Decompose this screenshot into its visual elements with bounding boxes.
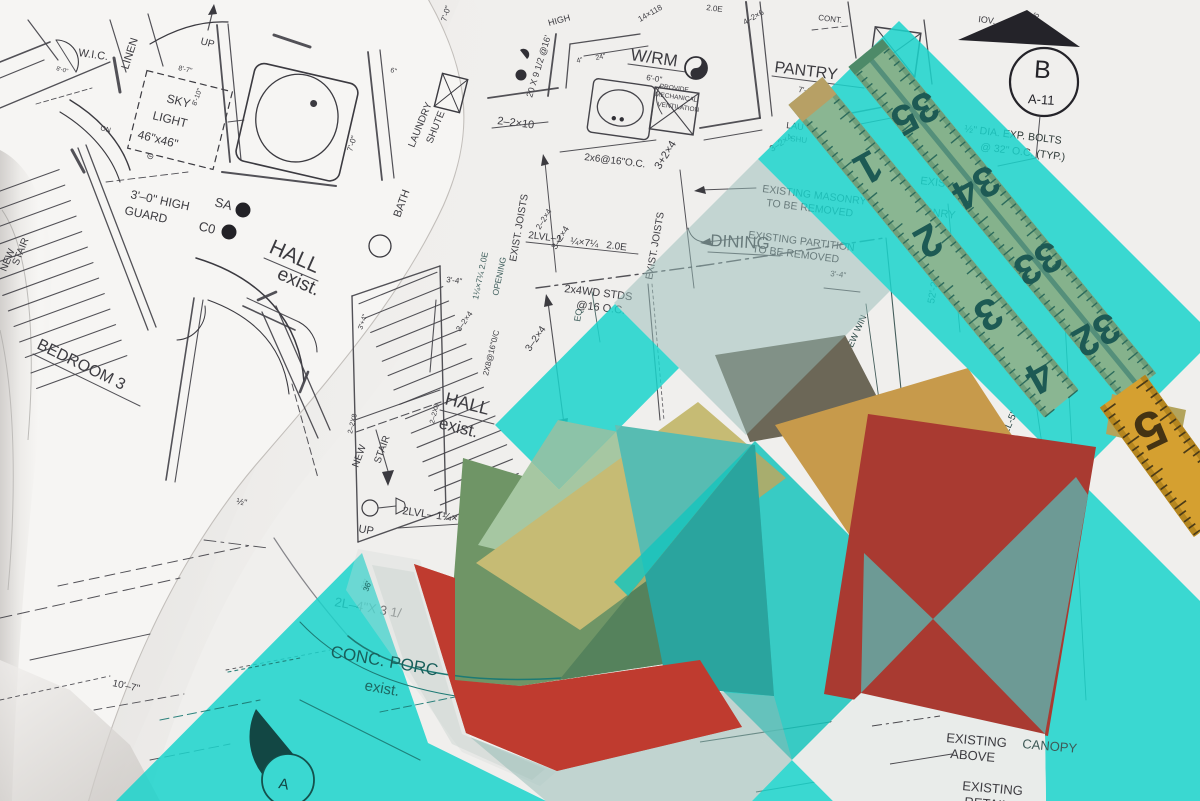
svg-text:½": ½" xyxy=(236,496,248,508)
svg-text:A-11: A-11 xyxy=(1028,91,1055,108)
svg-text:B: B xyxy=(1033,55,1052,84)
svg-text:IOV.: IOV. xyxy=(978,14,996,26)
